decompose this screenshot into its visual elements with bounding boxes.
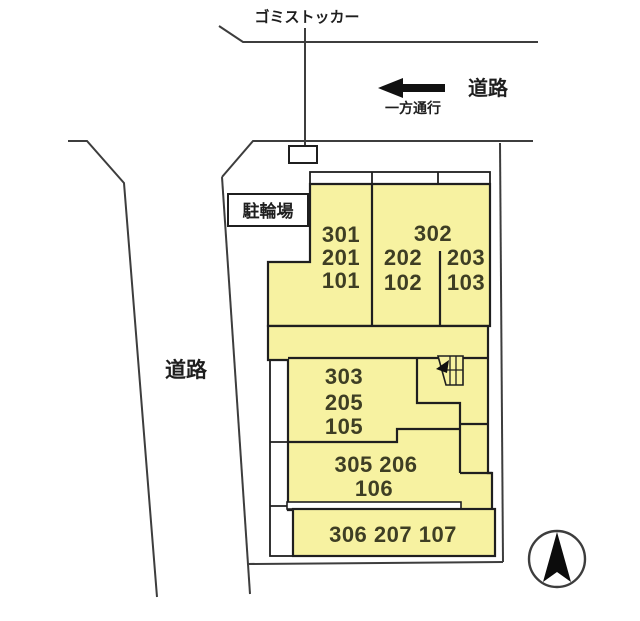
balcony-strip (310, 172, 490, 184)
unit-102: 102 (384, 270, 422, 295)
unit-301: 301 (322, 222, 360, 247)
north-compass (529, 531, 585, 587)
road-line-left (68, 141, 157, 597)
unit-203: 203 (447, 245, 485, 270)
unit-105: 105 (325, 414, 363, 439)
unit-306-207-107: 306 207 107 (329, 522, 457, 547)
site-plan-canvas: 駐輪場 一方通行 ゴミストッカー 道路 道路 301 201 101 302 2… (0, 0, 640, 621)
unit-305-206: 305 206 (334, 452, 417, 477)
bicycle-parking-label: 駐輪場 (243, 201, 294, 221)
unit-303: 303 (325, 364, 363, 389)
site-boundary-west (222, 177, 250, 594)
bicycle-parking: 駐輪場 (228, 194, 308, 226)
unit-302: 302 (414, 221, 452, 246)
unit-202: 202 (384, 245, 422, 270)
site-boundary-bottom (247, 562, 503, 564)
site-plan-svg: 駐輪場 一方通行 ゴミストッカー 道路 道路 301 201 101 302 2… (0, 0, 640, 621)
unit-201: 201 (322, 245, 360, 270)
unit-103: 103 (447, 270, 485, 295)
unit-205: 205 (325, 390, 363, 415)
garbage-stocker-box (289, 146, 317, 163)
one-way-arrow-icon (378, 78, 445, 98)
road-label-right: 道路 (468, 76, 509, 100)
site-boundary-east (500, 143, 503, 562)
road-label-left: 道路 (165, 358, 208, 382)
road-line-top (219, 26, 538, 42)
garbage-stocker-label: ゴミストッカー (254, 8, 359, 26)
unit-106: 106 (355, 476, 393, 501)
one-way-marking: 一方通行 (378, 78, 445, 116)
one-way-label: 一方通行 (385, 100, 441, 116)
unit-101: 101 (322, 268, 360, 293)
balcony-strip-outline (310, 172, 490, 184)
